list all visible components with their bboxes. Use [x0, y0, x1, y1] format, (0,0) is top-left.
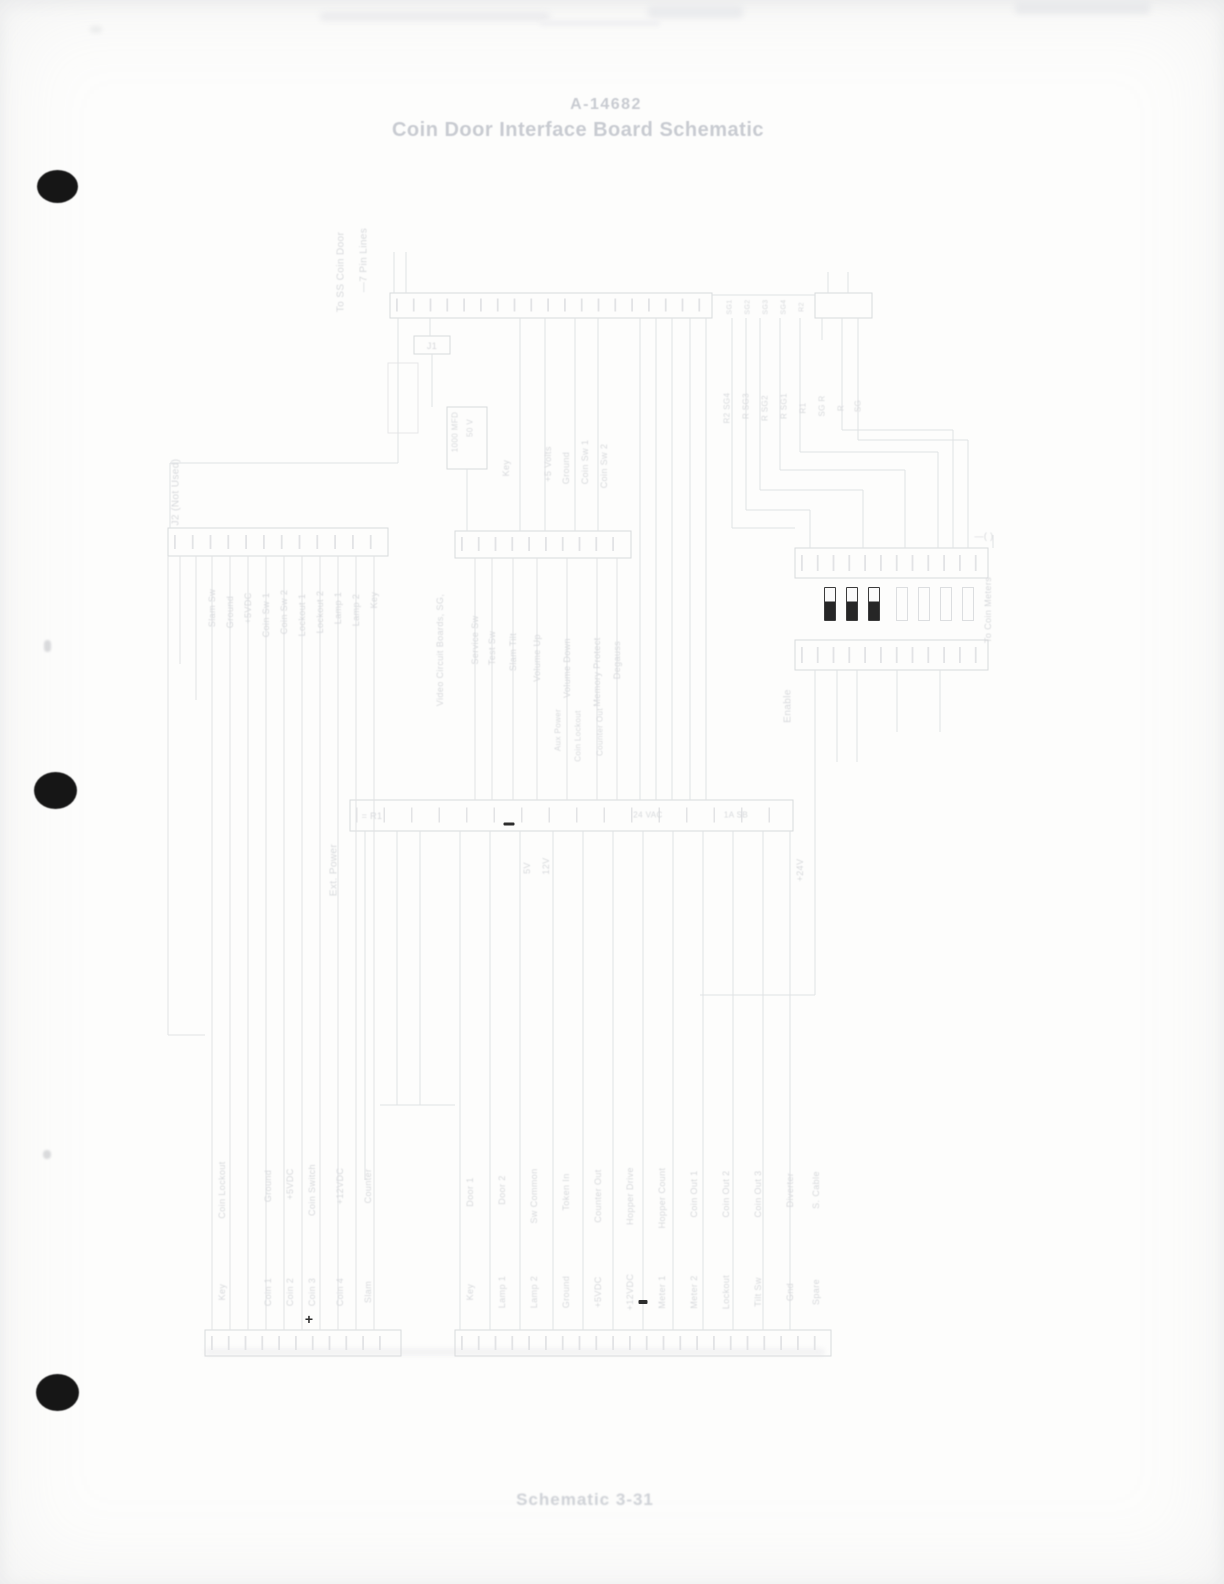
schematic-label: Coin Out 1	[689, 1170, 699, 1217]
schematic-label: Counter Out	[596, 708, 605, 756]
schematic-label: R SG3	[742, 393, 751, 419]
schematic-label: Hopper Count	[657, 1168, 667, 1229]
schematic-label: —( )	[974, 531, 993, 541]
schematic-label: Volume Up	[532, 634, 542, 682]
schematic-label: Door 1	[465, 1177, 475, 1206]
jumper-bar-filled	[868, 587, 880, 621]
schematic-label: Lamp 2	[351, 594, 361, 626]
schematic-label: Counter Out	[593, 1169, 603, 1222]
schematic-label: Meter 2	[689, 1275, 699, 1308]
schematic-label: SG3	[763, 299, 770, 314]
schematic-label: Lamp 1	[333, 592, 343, 624]
schematic-label: Coin 4	[335, 1278, 345, 1306]
schematic-label: +5VDC	[285, 1168, 295, 1199]
schematic-label: +5VDC	[593, 1276, 603, 1307]
schematic-label: Meter 1	[657, 1275, 667, 1308]
schematic-label: Key	[465, 1284, 475, 1301]
schematic-label: Hopper Drive	[625, 1167, 635, 1225]
schematic-label: Lamp 1	[497, 1276, 507, 1308]
jumper-bar-filled	[846, 587, 858, 621]
schematic-label: R SG2	[761, 395, 770, 421]
jumper-slot-empty	[918, 587, 930, 621]
schematic-label: Coin 1	[263, 1278, 273, 1306]
schematic-label: Lamp 2	[529, 1276, 539, 1308]
schematic-label: +5VDC	[243, 592, 253, 623]
schematic-label: Coin Sw 2	[599, 444, 609, 489]
jumper-slot-empty	[896, 587, 908, 621]
schematic-label: —7 Pin Lines	[359, 228, 370, 292]
schematic-label: = R1	[362, 811, 383, 821]
schematic-label: SG1	[727, 299, 734, 314]
schematic-label: Slam Sw	[207, 589, 217, 627]
schematic-labels-layer: To SS Coin Door—7 Pin LinesJ11000 MFD50 …	[0, 0, 1224, 1584]
schematic-label: Video Circuit Boards, SG,	[435, 594, 445, 706]
schematic-label: Coin Lockout	[574, 710, 583, 762]
schematic-label: SG R	[818, 395, 827, 416]
schematic-label: Coin Sw 2	[279, 590, 289, 635]
schematic-label: 50 V	[466, 419, 475, 437]
schematic-label: Slam Tilt	[508, 633, 518, 671]
schematic-label: 5V	[522, 862, 532, 874]
schematic-label: R SG1	[780, 393, 789, 419]
schematic-label: Coin 2	[285, 1278, 295, 1306]
schematic-label: Degauss	[612, 641, 622, 679]
schematic-label: To SS Coin Door	[336, 232, 347, 312]
schematic-label: S. Cable	[811, 1171, 821, 1209]
dark-dash-mark	[504, 823, 515, 826]
schematic-label: Coin Out 2	[721, 1170, 731, 1217]
schematic-label: +12VDC	[335, 1168, 345, 1205]
plus-mark: +	[305, 1312, 313, 1326]
schematic-label: +12VDC	[625, 1274, 635, 1311]
schematic-label: R1	[799, 402, 808, 413]
schematic-label: 1000 MFD	[451, 412, 460, 453]
schematic-label: J2 (Not Used)	[171, 459, 182, 526]
dark-dash-mark	[639, 1300, 648, 1304]
schematic-label: Ground	[225, 596, 235, 628]
schematic-label: Enable	[783, 689, 794, 723]
schematic-label: Service Sw	[470, 615, 480, 664]
schematic-label: Coin Out 3	[753, 1170, 763, 1217]
schematic-label: Key	[501, 460, 511, 477]
schematic-label: Sw Common	[529, 1168, 539, 1223]
schematic-label: Lockout	[721, 1275, 731, 1309]
figure-caption: Schematic 3-31	[0, 1490, 1197, 1510]
schematic-label: Token In	[561, 1173, 571, 1210]
schematic-label: Aux Power	[554, 709, 563, 751]
schematic-label: 24 VAC	[633, 811, 662, 820]
schematic-label: +5 Volts	[543, 446, 553, 481]
schematic-label: +24V	[795, 859, 805, 882]
schematic-label: SG2	[745, 299, 752, 314]
jumper-bar-filled	[824, 587, 836, 621]
schematic-label: Ext. Power	[329, 844, 340, 896]
schematic-label: Door 2	[497, 1175, 507, 1204]
schematic-label: Counter	[363, 1169, 373, 1204]
schematic-label: Diverter	[785, 1173, 795, 1208]
schematic-label: 12V	[541, 857, 551, 874]
schematic-label: R2	[799, 302, 806, 312]
schematic-label: To Coin Meters	[983, 577, 993, 643]
schematic-label: SG	[854, 400, 863, 412]
schematic-label: Memory Protect	[592, 637, 602, 706]
schematic-label: Tilt Sw	[753, 1277, 763, 1306]
jumper-slot-empty	[940, 587, 952, 621]
schematic-label: Key	[217, 1284, 227, 1301]
schematic-label: Test Sw	[487, 631, 497, 665]
schematic-label: Spare	[811, 1279, 821, 1305]
schematic-label: R2 SG4	[723, 393, 732, 424]
schematic-label: Lockout 1	[297, 594, 307, 637]
schematic-label: 1A SB	[724, 811, 748, 820]
scanned-page: A-14682 Coin Door Interface Board Schema…	[0, 0, 1224, 1584]
schematic-label: J1	[427, 341, 437, 351]
schematic-label: Key	[369, 592, 379, 609]
schematic-label: Coin Sw 1	[580, 440, 590, 485]
jumper-slot-empty	[962, 587, 974, 621]
schematic-label: Coin Sw 1	[261, 593, 271, 638]
schematic-label: Ground	[561, 1276, 571, 1308]
schematic-label: R	[837, 405, 846, 411]
schematic-label: Gnd	[785, 1283, 795, 1301]
schematic-label: Coin 3	[307, 1278, 317, 1306]
schematic-label: Coin Lockout	[217, 1161, 227, 1218]
schematic-label: Ground	[561, 452, 571, 484]
schematic-label: Ground	[263, 1170, 273, 1202]
schematic-label: Coin Switch	[307, 1164, 317, 1216]
schematic-label: Lockout 2	[315, 591, 325, 634]
schematic-label: Volume Down	[562, 638, 572, 698]
schematic-label: SG4	[781, 299, 788, 314]
schematic-label: Slam	[363, 1281, 373, 1303]
